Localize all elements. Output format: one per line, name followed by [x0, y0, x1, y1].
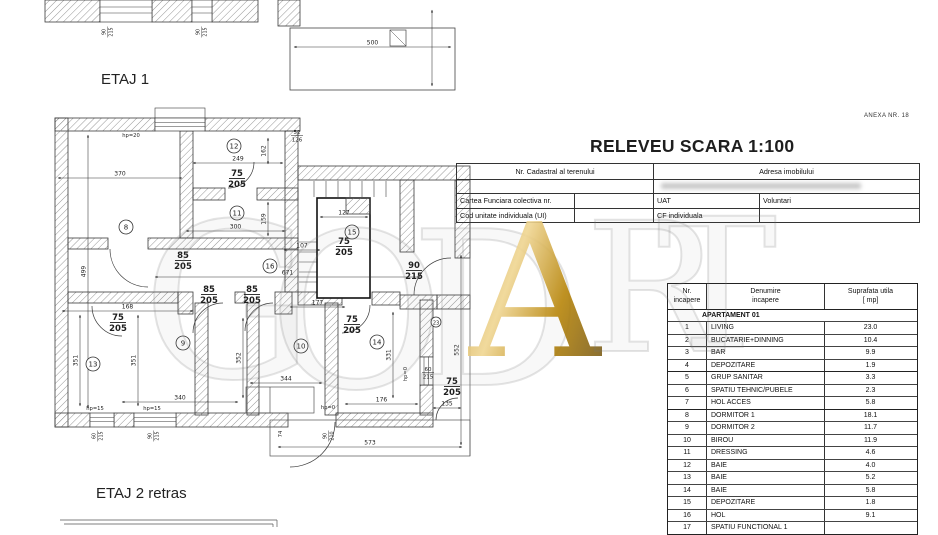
room-cell: 17: [668, 522, 706, 534]
room-number: 9: [181, 339, 185, 347]
cod-unitate-value: [574, 209, 653, 223]
room-cell: DORMITOR 1: [706, 410, 824, 422]
svg-text:90: 90: [323, 433, 329, 439]
cf-individuala-value: [759, 209, 919, 223]
svg-text:215: 215: [109, 27, 115, 36]
door-size-top: 75: [346, 315, 358, 325]
room-row: 9DORMITOR 211.7: [668, 421, 917, 434]
room-table-body: 1LIVING23.02BUCATARIE+DINNING10.43BAR9.9…: [668, 321, 917, 534]
room-cell: HOL ACCES: [706, 397, 824, 409]
room-cell: 16: [668, 510, 706, 522]
svg-text:215: 215: [203, 27, 209, 36]
uat-label: UAT: [653, 194, 759, 208]
room-cell: DEPOZITARE: [706, 497, 824, 509]
dimension-label: 127: [338, 210, 350, 217]
door-size-bottom: 205: [243, 296, 261, 306]
room-cell: 9.9: [824, 347, 916, 359]
small-label: hp=0: [321, 405, 335, 411]
nr-cadastral-label: Nr. Cadastral al terenului: [457, 164, 653, 179]
room-cell: 4: [668, 360, 706, 372]
room-number: 23: [433, 320, 440, 326]
room-table-header: Nr.incapere Denumireincapere Suprafata u…: [668, 284, 917, 309]
room-number-bubble: 11: [230, 206, 244, 220]
room-cell: 1.8: [824, 497, 916, 509]
room-number-bubble: 15: [345, 225, 359, 239]
room-number-bubble: 12: [227, 139, 241, 153]
room-number: 13: [89, 360, 98, 368]
door-size-top: 85: [203, 285, 215, 295]
room-cell: 9: [668, 422, 706, 434]
room-number: 11: [233, 209, 242, 217]
room-cell: SPATIU FUNCTIONAL 1: [706, 522, 824, 534]
uat-value: Voluntari: [759, 194, 919, 208]
room-cell: 7: [668, 397, 706, 409]
room-row: 17SPATIU FUNCTIONAL 1: [668, 521, 917, 534]
room-row: 12BAIE4.0: [668, 459, 917, 472]
room-cell: 13: [668, 472, 706, 484]
room-cell: BUCATARIE+DINNING: [706, 335, 824, 347]
room-cell: 11: [668, 447, 706, 459]
room-number-bubble: 9: [176, 336, 190, 350]
room-number-bubble: 23: [431, 317, 441, 327]
room-cell: 18.1: [824, 410, 916, 422]
dimension-label: 107: [296, 243, 308, 250]
room-cell: 10: [668, 435, 706, 447]
door-size-top: 75: [112, 313, 124, 323]
header-nr-incapere: Nr.incapere: [668, 284, 706, 309]
room-cell: 11.9: [824, 435, 916, 447]
cf-individuala-label: CF individuala: [653, 209, 759, 223]
svg-text:90: 90: [196, 29, 202, 35]
room-cell: BAIE: [706, 460, 824, 472]
room-cell: 14: [668, 485, 706, 497]
svg-text:215: 215: [155, 431, 161, 440]
door-size-top: 75: [231, 169, 243, 179]
room-cell: 4.0: [824, 460, 916, 472]
address-redacted: [661, 183, 861, 189]
room-number-bubble: 10: [294, 339, 308, 353]
room-cell: 6: [668, 385, 706, 397]
room-row: 11DRESSING4.6: [668, 446, 917, 459]
room-number-bubble: 14: [370, 335, 384, 349]
dimension-label: 168: [122, 304, 134, 311]
room-cell: 11.7: [824, 422, 916, 434]
room-cell: 10.4: [824, 335, 916, 347]
room-cell: 8: [668, 410, 706, 422]
door-size-bottom: 205: [343, 326, 361, 336]
header-suprafata: Suprafata utila[ mp]: [824, 284, 916, 309]
room-cell: BIROU: [706, 435, 824, 447]
dimension-label: 249: [232, 156, 244, 163]
window-size-label: 90215: [102, 27, 115, 38]
door-size-top: 75: [338, 237, 350, 247]
door-size-bottom: 205: [174, 262, 192, 272]
room-row: 6SPATIU TEHNIC/PUBELE2.3: [668, 384, 917, 397]
svg-text:90: 90: [148, 433, 154, 439]
svg-text:90: 90: [102, 29, 108, 35]
door-size-top: 60: [425, 367, 432, 373]
room-cell: BAIE: [706, 485, 824, 497]
room-cell: BAIE: [706, 472, 824, 484]
dimension-label: 671: [282, 270, 294, 277]
room-row: 7HOL ACCES5.8: [668, 396, 917, 409]
room-row: 5GRUP SANITAR3.3: [668, 371, 917, 384]
door-size-top: 85: [177, 251, 189, 261]
adresa-value: [653, 180, 919, 194]
room-cell: 15: [668, 497, 706, 509]
cadastral-table: Nr. Cadastral al terenului Adresa imobil…: [456, 163, 920, 223]
room-area-table: Nr.incapere Denumireincapere Suprafata u…: [667, 283, 918, 535]
room-cell: 9.1: [824, 510, 916, 522]
floor-label-etaj1: ETAJ 1: [101, 71, 149, 88]
svg-text:215: 215: [99, 431, 105, 440]
room-number: 16: [266, 262, 275, 270]
room-cell: DRESSING: [706, 447, 824, 459]
room-cell: HOL: [706, 510, 824, 522]
door-size-bottom: 215: [405, 272, 423, 282]
top-plan-fragment: [45, 0, 258, 22]
door-size-bottom: 205: [335, 248, 353, 258]
room-cell: SPATIU TEHNIC/PUBELE: [706, 385, 824, 397]
room-cell: 4.6: [824, 447, 916, 459]
header-denumire: Denumireincapere: [706, 284, 824, 309]
room-cell: [824, 522, 916, 534]
door-size-bottom: 205: [200, 296, 218, 306]
room-number: 8: [124, 223, 128, 231]
dimension-label: 370: [114, 171, 126, 178]
room-row: 2BUCATARIE+DINNING10.4: [668, 334, 917, 347]
window-size-label: 90215: [148, 431, 161, 442]
dimension-label: 162: [261, 145, 268, 157]
room-row: 8DORMITOR 118.1: [668, 409, 917, 422]
door-size-bottom: 205: [109, 324, 127, 334]
svg-text:60: 60: [92, 433, 98, 439]
dimension-label: 300: [230, 224, 242, 231]
dimension-label: 499: [81, 266, 88, 278]
dimension-label: 352: [236, 352, 243, 364]
svg-text:210: 210: [330, 431, 336, 440]
room-cell: 1: [668, 322, 706, 334]
cartea-funciara-label: Cartea Funciara colectiva nr.: [457, 194, 574, 208]
dimension-label: 331: [386, 349, 393, 361]
dimension-label: 340: [174, 395, 186, 402]
room-cell: 1.9: [824, 360, 916, 372]
room-cell: 5.8: [824, 485, 916, 497]
door-size-bottom: 205: [443, 388, 461, 398]
room-row: 15DEPOZITARE1.8: [668, 496, 917, 509]
room-cell: 5.2: [824, 472, 916, 484]
door-size-top: 75: [446, 377, 458, 387]
room-number: 12: [230, 142, 239, 150]
small-label: hp=15: [143, 406, 161, 412]
room-cell: DEPOZITARE: [706, 360, 824, 372]
room-cell: BAR: [706, 347, 824, 359]
door-size-top: 85: [246, 285, 258, 295]
door-size-bottom: 126: [292, 138, 303, 144]
adresa-label: Adresa imobilului: [653, 164, 919, 179]
cod-unitate-label: Cod unitate individuala (UI): [457, 209, 574, 223]
small-label: hp=0: [403, 367, 409, 381]
apartment-group-row: APARTAMENT 01: [668, 309, 917, 321]
dimension-label: 135: [441, 401, 453, 408]
room-row: 14BAIE5.8: [668, 484, 917, 497]
dimension-label: 351: [73, 355, 80, 367]
room-row: 1LIVING23.0: [668, 321, 917, 334]
room-number: 10: [297, 342, 306, 350]
anexa-number: ANEXA NR. 18: [864, 113, 909, 119]
dimension-label: 573: [364, 440, 376, 447]
room-cell: 3.3: [824, 372, 916, 384]
small-label: hp=15: [86, 406, 104, 412]
room-cell: LIVING: [706, 322, 824, 334]
dimension-label: 177: [312, 300, 324, 307]
nr-cadastral-value: [457, 180, 653, 194]
room-cell: GRUP SANITAR: [706, 372, 824, 384]
room-row: 4DEPOZITARE1.9: [668, 359, 917, 372]
room-number-bubble: 16: [263, 259, 277, 273]
cartea-funciara-value: [574, 194, 653, 208]
releveu-page: { "titles": { "releveu": "RELEVEU SCARA …: [0, 0, 938, 527]
door-size-top: 90: [408, 261, 420, 271]
small-label: hp=20: [122, 133, 140, 139]
dimension-label: 176: [376, 397, 388, 404]
door-size-top: 52: [294, 130, 301, 136]
room-row: 13BAIE5.2: [668, 471, 917, 484]
room-row: 16HOL9.1: [668, 509, 917, 522]
room-row: 3BAR9.9: [668, 346, 917, 359]
door-size-bottom: 215: [423, 375, 434, 381]
room-cell: DORMITOR 2: [706, 422, 824, 434]
room-cell: 2.3: [824, 385, 916, 397]
room-row: 10BIROU11.9: [668, 434, 917, 447]
floor-label-etaj2: ETAJ 2 retras: [96, 485, 187, 502]
dimension-label: 552: [454, 344, 461, 356]
dimension-label: 500: [367, 40, 379, 47]
room-cell: 5.8: [824, 397, 916, 409]
small-label: 74: [278, 430, 284, 437]
window-size-label: 60215: [92, 431, 105, 442]
room-number-bubble: 8: [119, 220, 133, 234]
room-cell: 2: [668, 335, 706, 347]
room-cell: 23.0: [824, 322, 916, 334]
dimension-label: 351: [131, 355, 138, 367]
room-number-bubble: 13: [86, 357, 100, 371]
dimension-label: 344: [280, 376, 292, 383]
room-cell: 3: [668, 347, 706, 359]
room-cell: 12: [668, 460, 706, 472]
window-size-label: 90210: [323, 431, 336, 442]
door-size-bottom: 205: [228, 180, 246, 190]
dimension-label: 159: [261, 213, 268, 225]
page-title: RELEVEU SCARA 1:100: [590, 136, 794, 157]
room-number: 14: [373, 338, 382, 346]
room-number: 15: [348, 228, 357, 236]
window-size-label: 90215: [196, 27, 209, 38]
room-cell: 5: [668, 372, 706, 384]
